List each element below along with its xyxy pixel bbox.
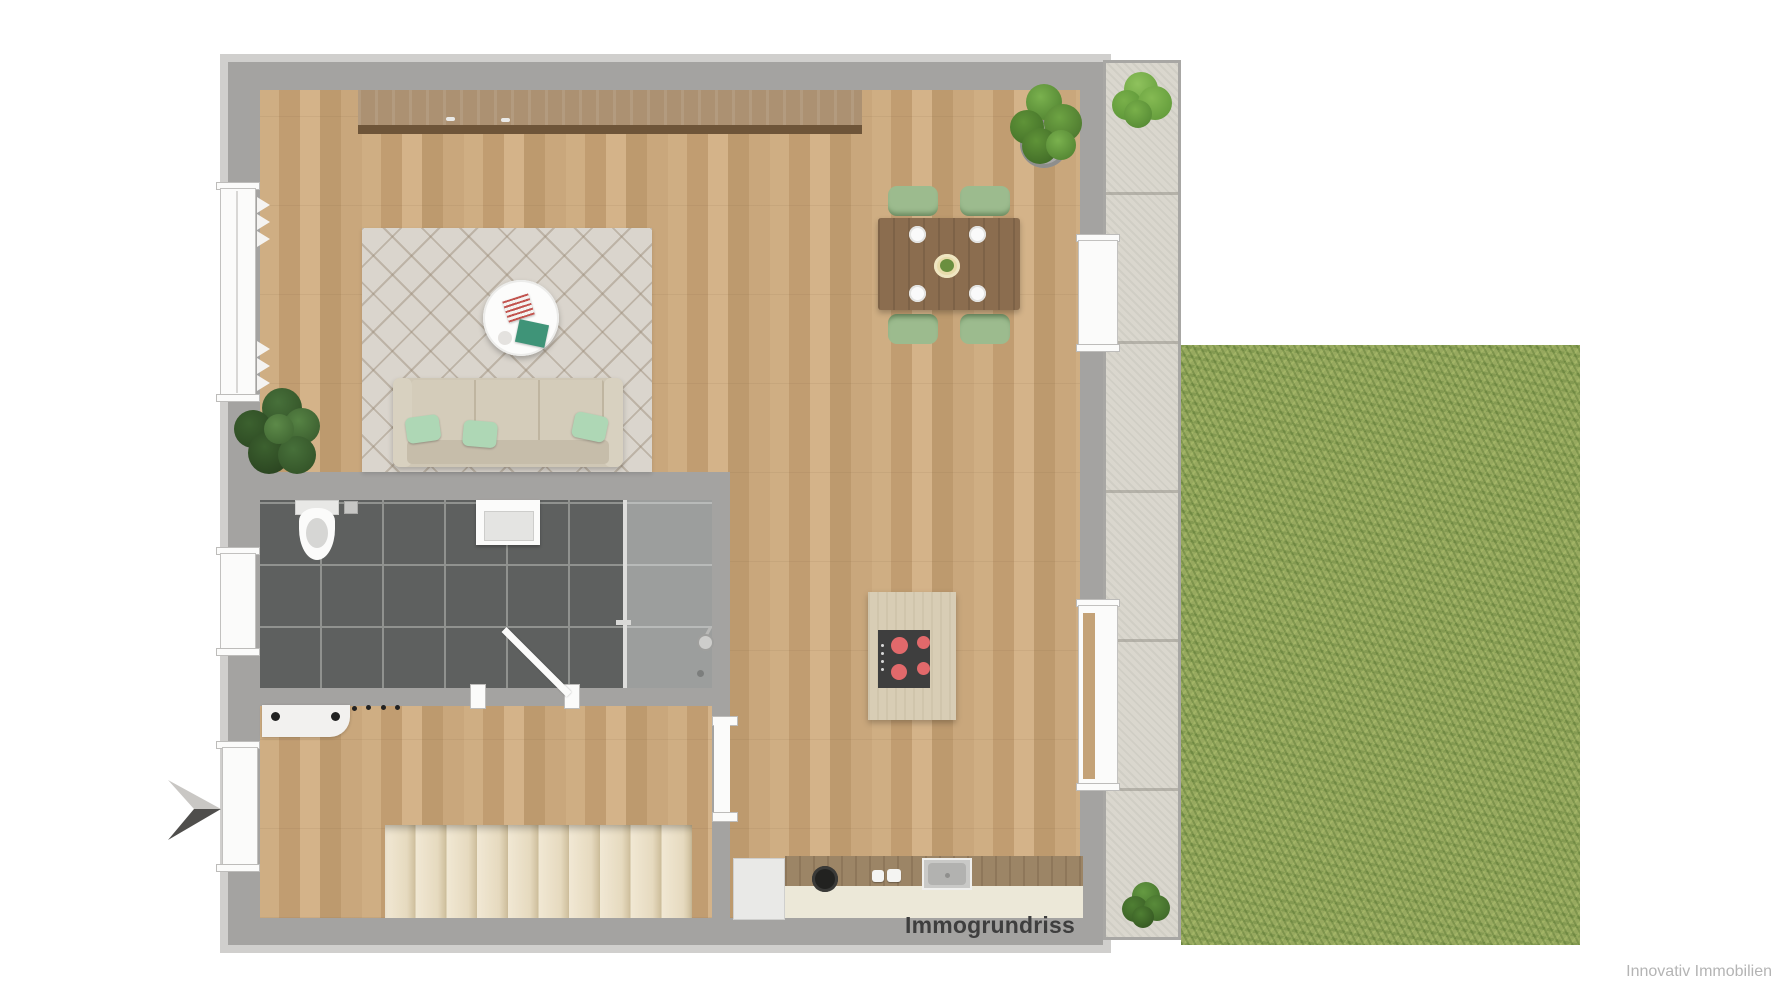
- window-cap: [216, 648, 260, 656]
- sideboard-handle: [446, 117, 455, 121]
- dinner-plate: [909, 285, 926, 302]
- coat-hook: [366, 705, 371, 710]
- garden-lawn: [1181, 345, 1580, 945]
- sofa-pillow: [462, 420, 498, 449]
- sofa: [393, 378, 623, 467]
- shower-floor: [627, 500, 712, 688]
- sofa-pillow: [404, 414, 441, 444]
- faucet: [872, 870, 884, 882]
- dinner-plate: [909, 226, 926, 243]
- toilet-flush: [344, 501, 358, 514]
- radiator-marks: [257, 341, 270, 391]
- sideboard-handle: [501, 118, 510, 122]
- terrace-path: [1103, 60, 1181, 940]
- cooking-pot: [812, 866, 838, 892]
- dining-chair: [960, 186, 1010, 216]
- dining-chair: [960, 314, 1010, 344]
- terrace-door-kitchen: [1078, 605, 1118, 785]
- floor-plan: Immogrundriss Innovativ Immobilien: [0, 0, 1778, 1000]
- kitchen-cabinet: [733, 858, 785, 920]
- door-cap: [1076, 344, 1120, 352]
- interior-wall-bathroom-top: [260, 472, 712, 500]
- wall-top: [228, 62, 1103, 90]
- dinner-plate: [969, 226, 986, 243]
- coat-hook: [331, 712, 340, 721]
- coat-hook: [352, 706, 357, 711]
- door-cap: [216, 864, 260, 872]
- kitchen-island: [868, 592, 956, 720]
- door-cap: [1076, 783, 1120, 791]
- coat-rack: [262, 705, 350, 737]
- window-living-room: [220, 188, 256, 396]
- dinner-plate: [969, 285, 986, 302]
- terrace-bush: [1112, 72, 1172, 130]
- watermark: Immogrundriss: [850, 912, 1075, 939]
- terrace-door-dining: [1078, 240, 1118, 346]
- shower-door-handle: [616, 620, 631, 625]
- window-cap: [216, 394, 260, 402]
- shower-glass-partition: [623, 500, 627, 688]
- stairs: [385, 825, 692, 918]
- hallway-door-opening: [714, 724, 730, 814]
- dining-table: [878, 218, 1020, 310]
- credit: Innovativ Immobilien: [1590, 963, 1772, 981]
- window-bathroom: [220, 553, 256, 650]
- shower-drain: [697, 670, 704, 677]
- terrace-plant: [1122, 882, 1170, 930]
- hallway-door-jamb: [712, 812, 738, 822]
- interior-wall-hall-right: [712, 472, 730, 918]
- interior-wall-bathroom-bottom: [260, 688, 712, 706]
- cooktop: [878, 630, 930, 688]
- dining-chair: [888, 186, 938, 216]
- coat-hook: [381, 705, 386, 710]
- faucet: [887, 869, 901, 882]
- centerpiece: [934, 254, 960, 278]
- sofa-backrest: [407, 440, 609, 464]
- sideboard: [358, 90, 862, 134]
- kitchen-sink: [922, 858, 972, 890]
- shower-head-icon: [699, 636, 712, 649]
- bathroom-door-jamb: [470, 684, 486, 709]
- coaster: [498, 331, 512, 345]
- coat-hook: [271, 712, 280, 721]
- coat-hook: [395, 705, 400, 710]
- potted-plant-dining: [1010, 84, 1080, 176]
- wall-right: [1080, 62, 1103, 945]
- dining-chair: [888, 314, 938, 344]
- washbasin: [476, 500, 540, 545]
- entrance-arrow-icon: [166, 776, 224, 844]
- entrance-door: [222, 747, 258, 866]
- radiator-marks: [257, 197, 270, 247]
